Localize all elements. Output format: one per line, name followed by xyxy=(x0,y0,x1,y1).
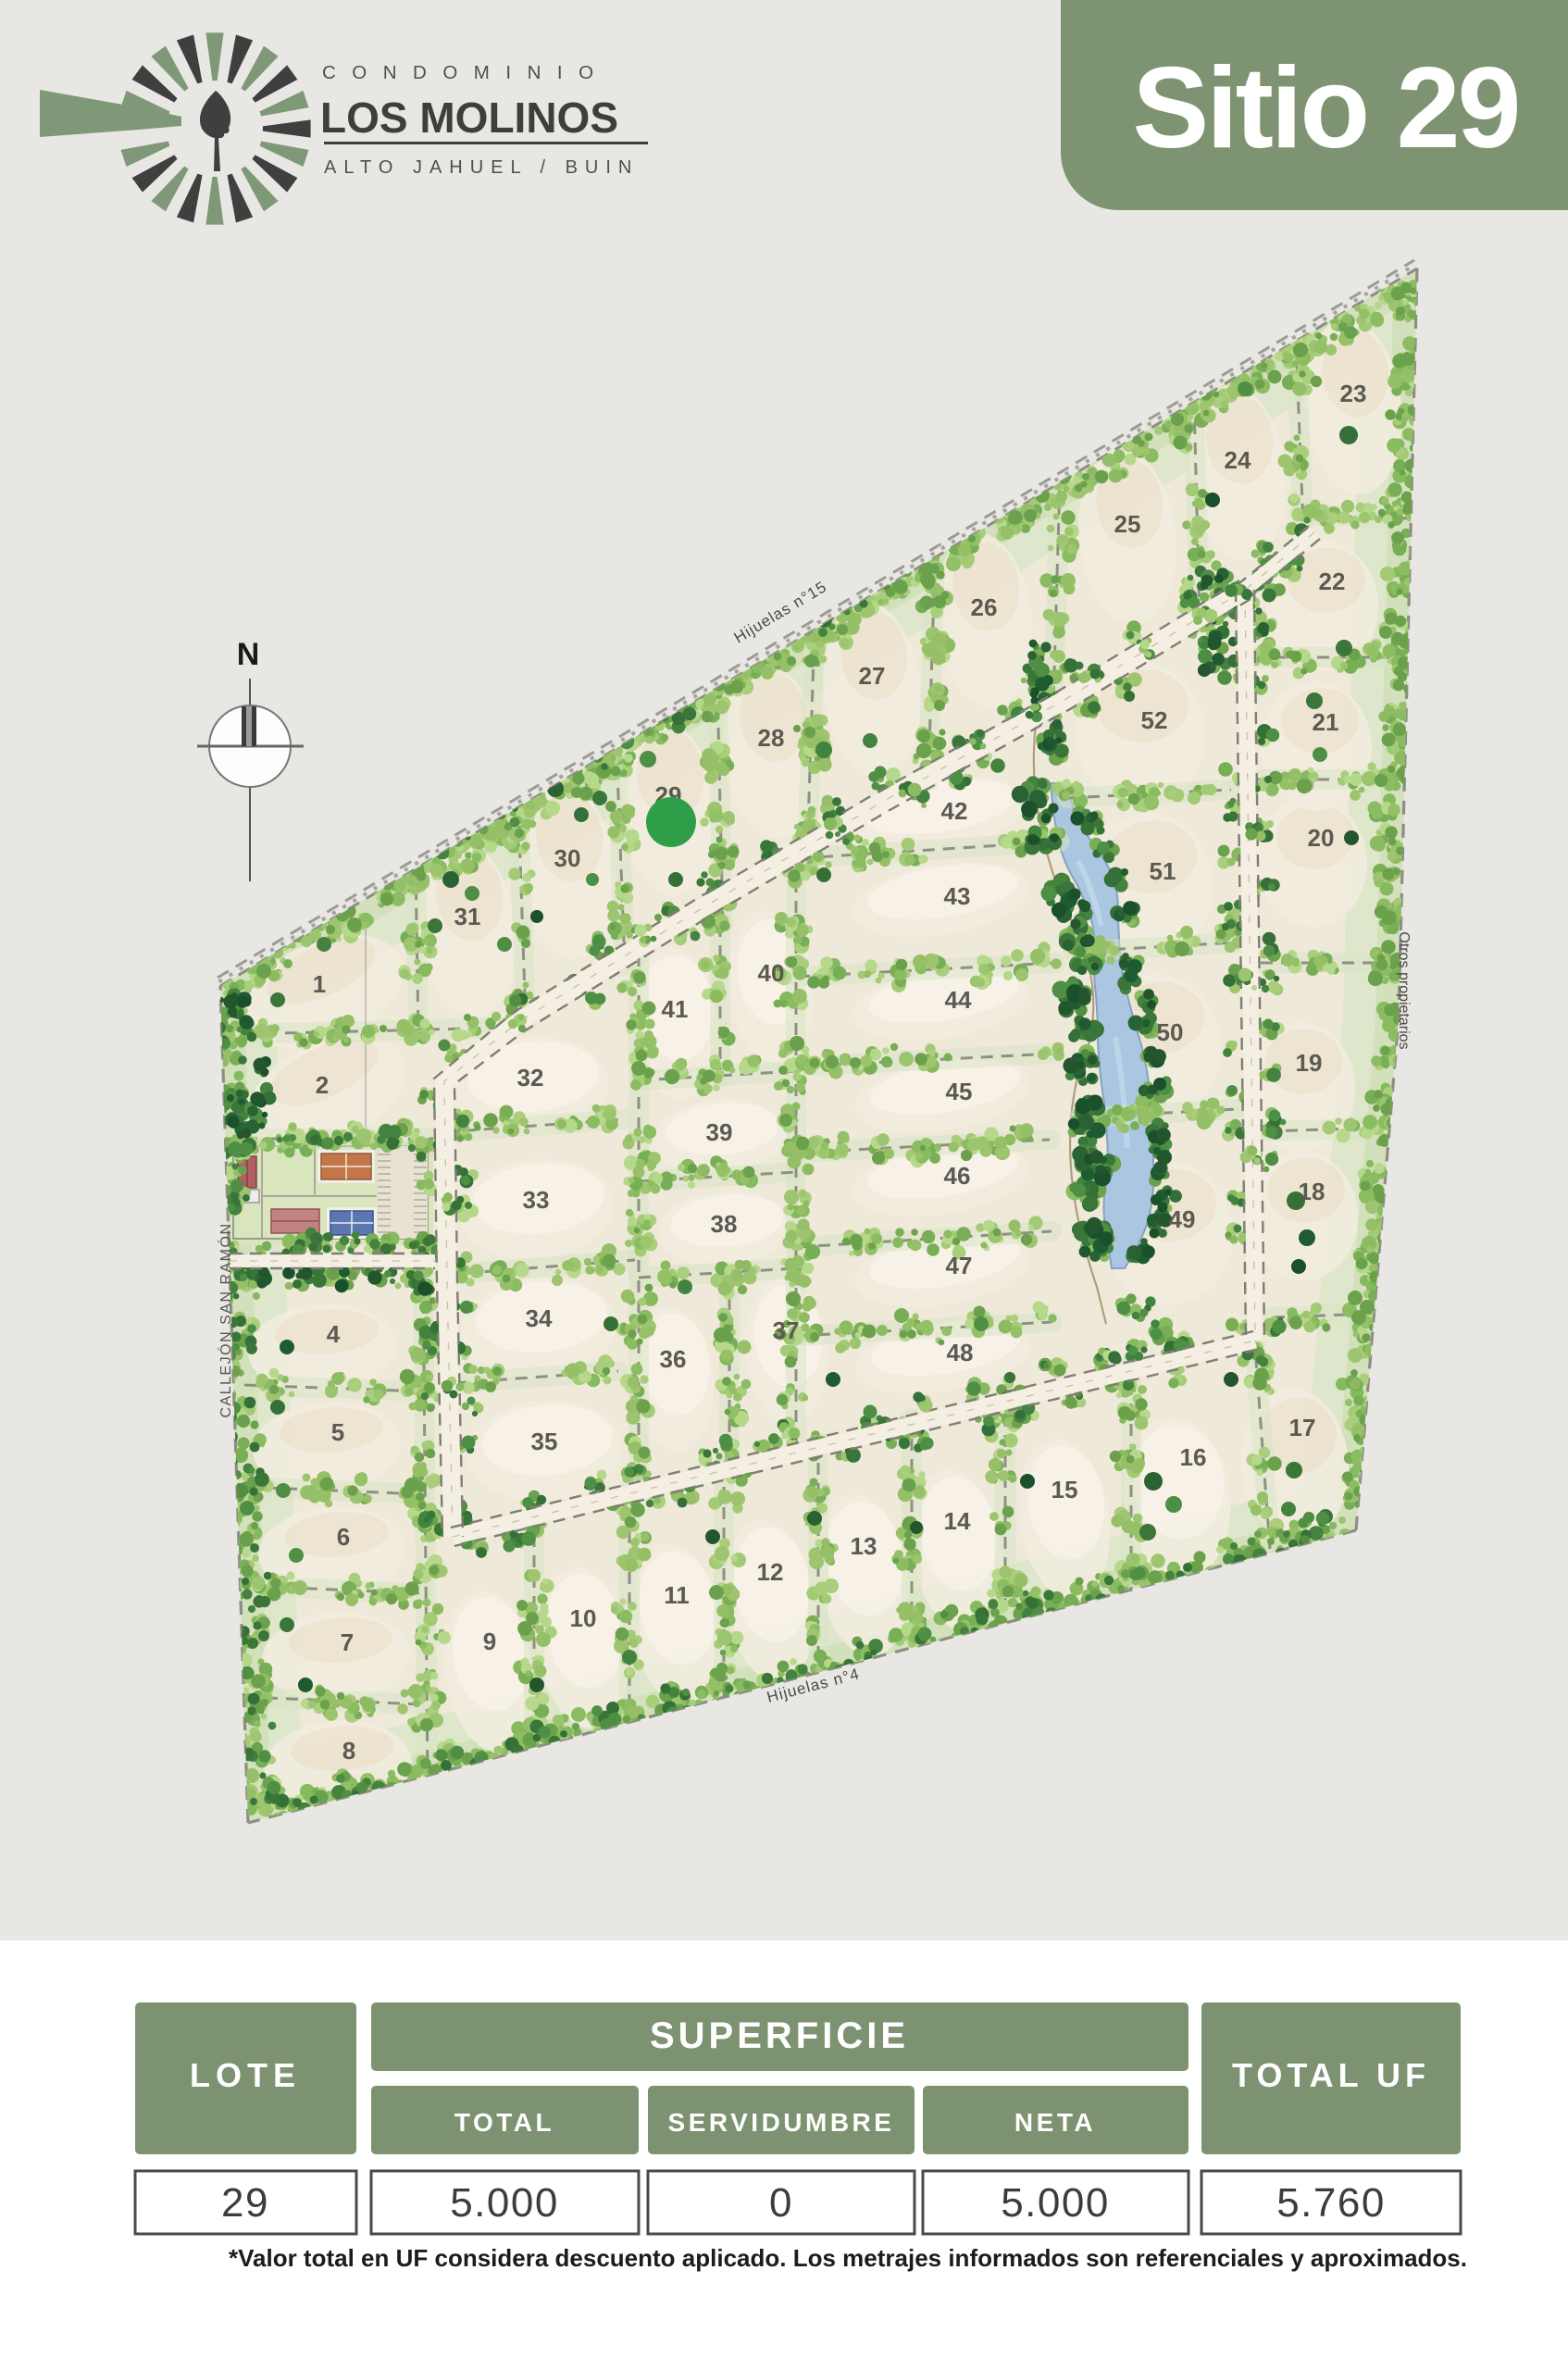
svg-text:N: N xyxy=(237,637,260,672)
svg-text:CONDOMINIO: CONDOMINIO xyxy=(322,62,610,83)
svg-text:ALTO JAHUEL / BUIN: ALTO JAHUEL / BUIN xyxy=(324,157,639,178)
svg-text:Sitio 29: Sitio 29 xyxy=(1132,44,1518,172)
svg-text:LOS MOLINOS: LOS MOLINOS xyxy=(320,94,618,142)
